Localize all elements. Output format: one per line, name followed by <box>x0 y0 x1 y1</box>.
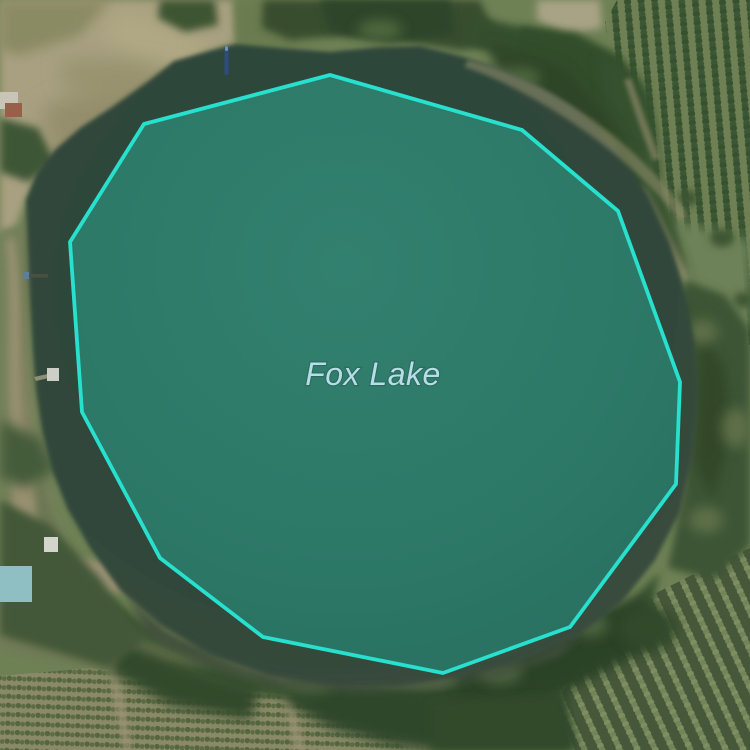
svg-text:Fox Lake: Fox Lake <box>305 356 441 392</box>
